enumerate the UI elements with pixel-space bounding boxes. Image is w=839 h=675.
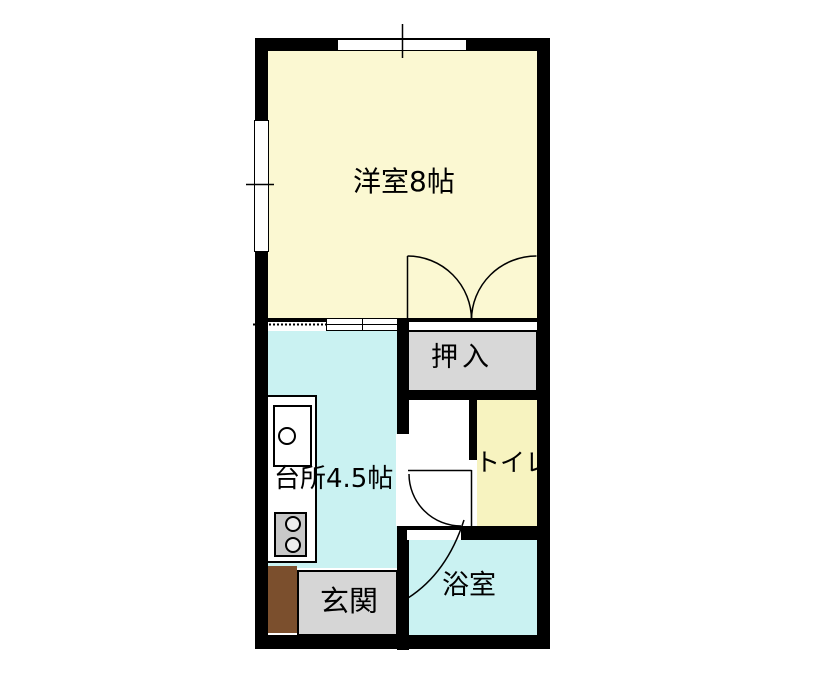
label-bathroom: 浴室 bbox=[442, 570, 496, 601]
wall-right bbox=[537, 38, 550, 649]
kitchen-sliding-door bbox=[326, 318, 398, 331]
label-closet: 押入 bbox=[431, 342, 493, 373]
stove-burner-icon bbox=[285, 516, 301, 532]
room-hallway bbox=[409, 400, 469, 528]
hallway-door-opening bbox=[396, 434, 409, 526]
stove-burner-icon bbox=[285, 537, 301, 553]
label-entrance: 玄関 bbox=[320, 585, 378, 618]
bathroom-door-opening bbox=[407, 530, 461, 540]
window-left bbox=[254, 120, 269, 252]
sink-drain-icon bbox=[278, 427, 296, 445]
label-toilet: トイレ bbox=[475, 449, 550, 478]
label-kitchen: 台所4.5帖 bbox=[274, 465, 393, 495]
label-western-room: 洋室8帖 bbox=[353, 166, 455, 198]
floorplan: 洋室8帖 押入 台所4.5帖 トイレ 浴室 玄関 bbox=[0, 0, 839, 675]
entrance-step bbox=[267, 566, 297, 633]
window-top bbox=[337, 39, 467, 51]
wall-closet-bottom bbox=[397, 392, 550, 400]
